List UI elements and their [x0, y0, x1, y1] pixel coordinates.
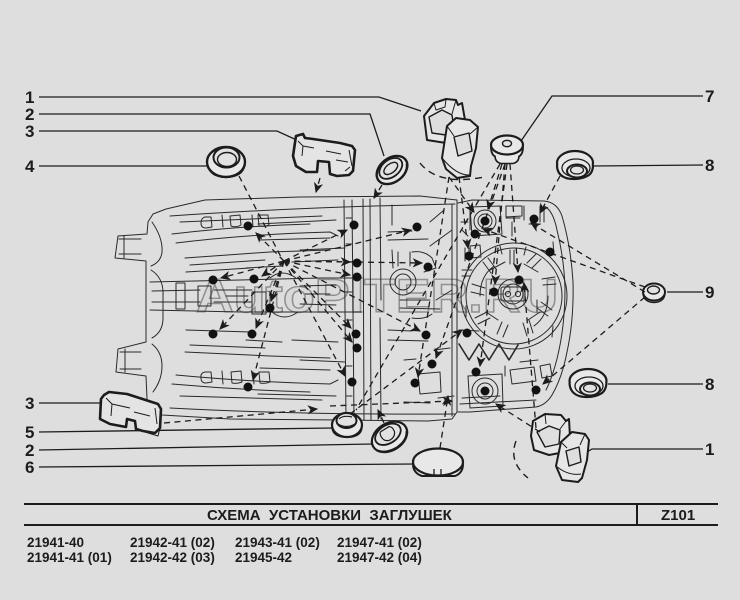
svg-text:21947-41 (02): 21947-41 (02)	[337, 535, 422, 550]
svg-text:3: 3	[25, 394, 34, 413]
svg-text:7: 7	[705, 87, 714, 106]
svg-text:21945-42: 21945-42	[235, 550, 292, 565]
svg-text:1: 1	[705, 440, 714, 459]
svg-text:СХЕМА УСТАНОВКИ ЗАГЛУШЕК: СХЕМА УСТАНОВКИ ЗАГЛУШЕК	[207, 507, 453, 524]
svg-text:8: 8	[705, 375, 714, 394]
svg-text:21947-42 (04): 21947-42 (04)	[337, 550, 422, 565]
svg-text:5: 5	[25, 423, 34, 442]
svg-text:21943-41 (02): 21943-41 (02)	[235, 535, 320, 550]
svg-text:21941-41 (01): 21941-41 (01)	[27, 550, 112, 565]
svg-text:4: 4	[25, 157, 35, 176]
svg-text:21941-40: 21941-40	[27, 535, 84, 550]
svg-text:6: 6	[25, 458, 34, 477]
svg-text:21942-42 (03): 21942-42 (03)	[130, 550, 215, 565]
svg-text:8: 8	[705, 156, 714, 175]
svg-text:3: 3	[25, 122, 34, 141]
svg-text:Z101: Z101	[661, 507, 695, 524]
svg-text:21942-41 (02): 21942-41 (02)	[130, 535, 215, 550]
svg-text:9: 9	[705, 283, 714, 302]
